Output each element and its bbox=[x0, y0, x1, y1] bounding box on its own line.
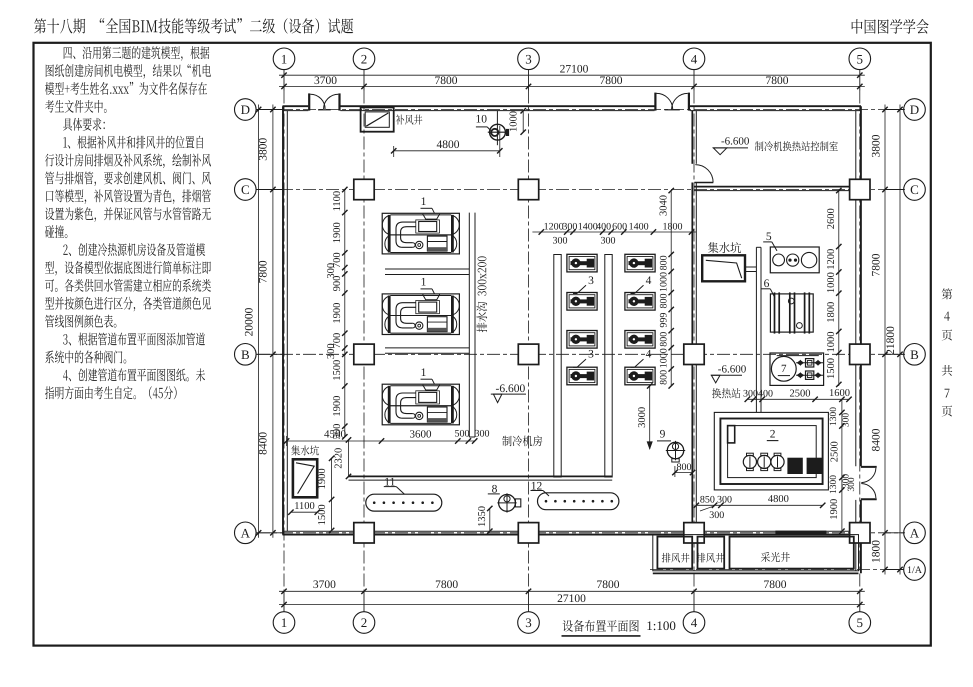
svg-text:800: 800 bbox=[677, 462, 692, 473]
svg-text:1100: 1100 bbox=[332, 191, 343, 212]
svg-text:2600: 2600 bbox=[826, 208, 837, 229]
svg-text:5: 5 bbox=[857, 615, 864, 630]
svg-text:2: 2 bbox=[770, 428, 776, 440]
svg-text:1500: 1500 bbox=[332, 360, 343, 381]
svg-text:4: 4 bbox=[646, 275, 652, 287]
svg-text:27100: 27100 bbox=[557, 593, 586, 605]
svg-text:1400: 1400 bbox=[578, 221, 598, 232]
svg-text:3: 3 bbox=[525, 615, 532, 630]
svg-text:1500: 1500 bbox=[826, 358, 837, 379]
svg-text:4: 4 bbox=[691, 51, 698, 66]
svg-text:27100: 27100 bbox=[560, 63, 589, 75]
svg-text:1900: 1900 bbox=[829, 499, 840, 520]
svg-text:1600: 1600 bbox=[829, 388, 850, 399]
svg-text:7800: 7800 bbox=[258, 260, 270, 283]
svg-text:3800: 3800 bbox=[258, 138, 270, 161]
svg-text:1300: 1300 bbox=[829, 475, 839, 494]
svg-text:1: 1 bbox=[421, 277, 427, 289]
svg-text:7800: 7800 bbox=[871, 253, 883, 276]
svg-text:4800: 4800 bbox=[437, 139, 460, 151]
svg-text:1900: 1900 bbox=[332, 303, 343, 324]
svg-text:2500: 2500 bbox=[790, 389, 811, 400]
svg-text:7: 7 bbox=[781, 363, 787, 375]
svg-text:D: D bbox=[241, 102, 250, 117]
svg-text:1800: 1800 bbox=[663, 221, 683, 232]
svg-text:5: 5 bbox=[766, 231, 772, 243]
svg-text:999: 999 bbox=[659, 313, 670, 328]
svg-text:8400: 8400 bbox=[871, 428, 883, 451]
svg-text:3040: 3040 bbox=[659, 195, 670, 216]
svg-text:1: 1 bbox=[281, 615, 288, 630]
svg-text:800: 800 bbox=[659, 332, 670, 347]
svg-text:C: C bbox=[910, 182, 919, 197]
svg-text:7800: 7800 bbox=[766, 75, 789, 87]
svg-text:1900: 1900 bbox=[332, 396, 343, 417]
svg-text:D: D bbox=[910, 102, 919, 117]
svg-text:-6.600: -6.600 bbox=[721, 135, 750, 147]
svg-text:1100: 1100 bbox=[294, 501, 315, 512]
svg-text:-6.600: -6.600 bbox=[718, 364, 747, 376]
svg-text:3: 3 bbox=[525, 51, 532, 66]
svg-text:-6.600: -6.600 bbox=[496, 383, 526, 395]
svg-text:C: C bbox=[241, 182, 250, 197]
svg-text:300: 300 bbox=[562, 221, 577, 232]
svg-text:3700: 3700 bbox=[313, 579, 336, 591]
svg-text:300: 300 bbox=[709, 510, 724, 521]
svg-text:1:100: 1:100 bbox=[646, 618, 676, 633]
svg-text:1400: 1400 bbox=[629, 221, 649, 232]
svg-text:10: 10 bbox=[476, 114, 488, 126]
svg-text:20000: 20000 bbox=[243, 307, 255, 336]
svg-text:4800: 4800 bbox=[768, 494, 789, 505]
svg-text:A: A bbox=[241, 525, 251, 540]
svg-text:300: 300 bbox=[601, 236, 616, 247]
svg-text:300: 300 bbox=[842, 413, 852, 428]
svg-text:2320: 2320 bbox=[334, 448, 345, 469]
svg-text:300: 300 bbox=[743, 389, 758, 400]
svg-text:2: 2 bbox=[361, 51, 368, 66]
svg-text:300: 300 bbox=[553, 236, 568, 247]
svg-text:3000: 3000 bbox=[637, 407, 648, 428]
svg-text:1350: 1350 bbox=[477, 506, 488, 527]
svg-text:1900: 1900 bbox=[332, 222, 343, 243]
svg-text:1200: 1200 bbox=[544, 221, 564, 232]
svg-text:1800: 1800 bbox=[826, 302, 837, 323]
svg-text:300: 300 bbox=[717, 494, 732, 505]
svg-text:2500: 2500 bbox=[829, 441, 840, 462]
svg-text:1000: 1000 bbox=[659, 272, 670, 292]
svg-text:8400: 8400 bbox=[258, 432, 270, 455]
svg-text:3800: 3800 bbox=[871, 134, 883, 157]
svg-text:3: 3 bbox=[588, 349, 594, 361]
svg-text:800: 800 bbox=[659, 294, 670, 309]
svg-text:4500: 4500 bbox=[324, 429, 347, 441]
svg-text:300: 300 bbox=[475, 429, 490, 440]
svg-text:B: B bbox=[241, 347, 250, 362]
svg-text:1500: 1500 bbox=[317, 504, 328, 525]
svg-text:1: 1 bbox=[421, 196, 427, 208]
svg-text:1900: 1900 bbox=[317, 468, 328, 489]
svg-text:1: 1 bbox=[421, 367, 427, 379]
svg-text:1000: 1000 bbox=[826, 272, 837, 293]
svg-text:3600: 3600 bbox=[410, 429, 433, 441]
svg-text:1000: 1000 bbox=[509, 111, 520, 132]
svg-text:2: 2 bbox=[361, 615, 368, 630]
svg-text:1000: 1000 bbox=[826, 332, 837, 353]
svg-text:800: 800 bbox=[659, 255, 670, 270]
svg-text:1: 1 bbox=[281, 51, 288, 66]
svg-text:850: 850 bbox=[700, 494, 715, 505]
svg-text:7800: 7800 bbox=[597, 579, 620, 591]
svg-text:4: 4 bbox=[646, 349, 652, 361]
svg-text:400: 400 bbox=[596, 221, 611, 232]
svg-text:1/A: 1/A bbox=[907, 565, 923, 576]
svg-text:7800: 7800 bbox=[435, 75, 458, 87]
svg-text:800: 800 bbox=[659, 370, 670, 385]
svg-text:7800: 7800 bbox=[764, 579, 787, 591]
svg-text:3700: 3700 bbox=[314, 75, 337, 87]
svg-text:1000: 1000 bbox=[659, 348, 670, 368]
svg-text:300: 300 bbox=[326, 263, 337, 279]
svg-text:1800: 1800 bbox=[871, 540, 883, 563]
svg-text:300: 300 bbox=[847, 477, 857, 492]
svg-text:A: A bbox=[910, 525, 920, 540]
svg-text:9: 9 bbox=[660, 429, 666, 441]
svg-text:7800: 7800 bbox=[600, 75, 623, 87]
svg-text:21800: 21800 bbox=[885, 326, 897, 355]
svg-text:400: 400 bbox=[758, 389, 773, 400]
svg-text:3: 3 bbox=[588, 275, 594, 287]
svg-text:1300: 1300 bbox=[829, 407, 839, 426]
svg-text:B: B bbox=[910, 347, 919, 362]
svg-text:1200: 1200 bbox=[826, 249, 837, 270]
svg-text:5: 5 bbox=[857, 51, 864, 66]
svg-text:7800: 7800 bbox=[435, 579, 458, 591]
svg-text:300: 300 bbox=[326, 343, 337, 359]
svg-text:600: 600 bbox=[612, 221, 627, 232]
svg-text:500: 500 bbox=[455, 429, 470, 440]
svg-text:4: 4 bbox=[691, 615, 698, 630]
